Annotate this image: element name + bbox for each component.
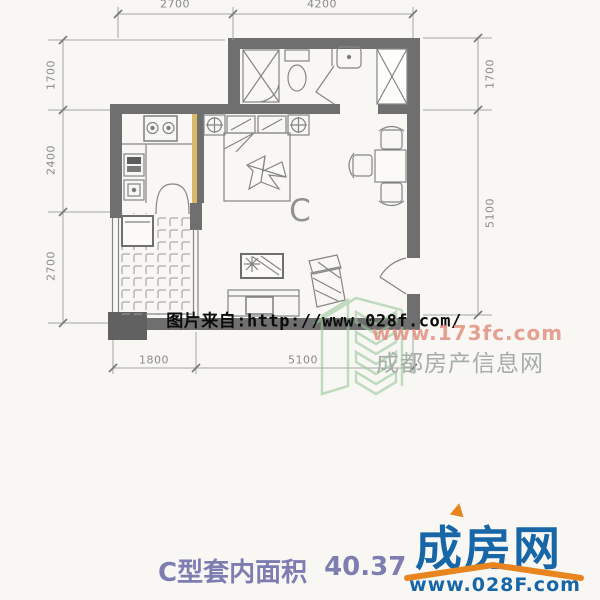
unit-label: C — [289, 193, 311, 229]
balcony-window-left — [113, 218, 119, 312]
unit-area-caption: C型套内面积 40.37 — [158, 552, 406, 589]
washing-machine — [122, 216, 153, 246]
kitchen-sink — [124, 180, 144, 200]
plant-icon — [244, 256, 260, 272]
brand-logo: 成房网 www.028F.com — [403, 504, 587, 596]
watermark-site-url: www.173fc.com — [372, 321, 563, 345]
utility-shaft — [377, 49, 407, 104]
toilet — [285, 50, 309, 91]
kitchen-stove — [144, 116, 177, 141]
kitchen-wall-accent — [192, 114, 197, 203]
flame-icon — [450, 502, 466, 518]
washbasin — [337, 47, 361, 68]
dim-left-1: 1700 — [45, 60, 58, 90]
dining-chair-bottom — [379, 183, 404, 206]
dining-chair-top — [379, 127, 404, 150]
area-value: 40.37 — [324, 552, 406, 589]
tv-stand — [241, 254, 283, 278]
dim-top-left: 2700 — [160, 0, 190, 11]
dim-right-2: 5100 — [484, 198, 497, 228]
bed — [224, 116, 290, 201]
dim-bottom-left: 1800 — [139, 354, 169, 367]
dim-left-3: 2700 — [45, 251, 58, 281]
nightstand-right — [288, 115, 309, 135]
bathroom-door — [316, 49, 334, 104]
floorplan-image: 2700 4200 1700 2400 2700 1700 5100 1800 … — [0, 0, 600, 600]
dim-right-1: 1700 — [484, 59, 497, 89]
dim-left-2: 2400 — [45, 145, 58, 175]
kitchen-door-arc — [156, 184, 189, 214]
brand-url: www.028F.com — [403, 574, 587, 596]
shower — [243, 50, 279, 102]
area-label: C型套内面积 — [158, 552, 307, 589]
balcony-sliding-door — [194, 229, 199, 316]
dim-top-right: 4200 — [307, 0, 337, 11]
dining-chair-left — [349, 153, 372, 178]
dining-table — [375, 150, 406, 182]
nightstand-left — [204, 115, 225, 135]
watermark-site-name: 成都房产信息网 — [376, 344, 544, 378]
kitchen-appliance — [124, 154, 144, 176]
